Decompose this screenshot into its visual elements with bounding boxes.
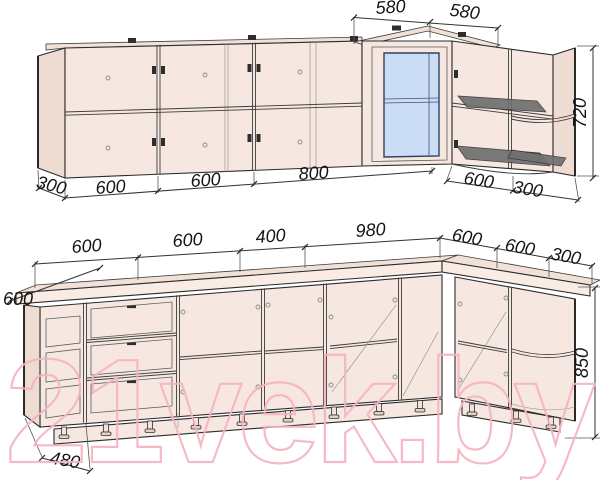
dim-upper-bottom-left-3: 800 bbox=[298, 162, 329, 184]
upper-right-run bbox=[452, 41, 575, 176]
dim-upper-top-0: 580 bbox=[375, 0, 406, 18]
dim-base-depth-left: 600 bbox=[3, 289, 33, 309]
dim-base-top-0: 600 bbox=[71, 235, 102, 257]
dim-base-top-6: 300 bbox=[550, 244, 583, 269]
kitchen-drawing: 580 580 720 300 600 600 800 600 300 bbox=[0, 0, 600, 480]
dim-base-top-5: 600 bbox=[504, 235, 537, 260]
dim-base-top-1: 600 bbox=[172, 229, 203, 251]
upper-left-run bbox=[38, 35, 362, 178]
upper-cabinets-drawing: 580 580 720 300 600 600 800 600 300 bbox=[34, 0, 599, 203]
watermark-text: 21vek.by bbox=[5, 329, 595, 480]
dim-upper-bottom-left-1: 600 bbox=[95, 176, 126, 198]
dim-upper-top-1: 580 bbox=[449, 0, 481, 23]
drawing-canvas: 580 580 720 300 600 600 800 600 300 bbox=[0, 0, 600, 480]
dim-base-top-3: 980 bbox=[355, 219, 386, 241]
base-cabinets-drawing: 600 600 400 980 600 600 300 600 850 480 … bbox=[3, 219, 600, 480]
dim-upper-height: 720 bbox=[570, 98, 590, 128]
dim-upper-bottom-left-2: 600 bbox=[190, 169, 221, 191]
dim-base-top-4: 600 bbox=[451, 225, 484, 250]
glass-door bbox=[384, 53, 439, 157]
dim-upper-bottom-right-0: 600 bbox=[463, 168, 496, 192]
dim-base-top-2: 400 bbox=[255, 225, 286, 247]
dim-upper-bottom-right-1: 300 bbox=[512, 177, 545, 201]
